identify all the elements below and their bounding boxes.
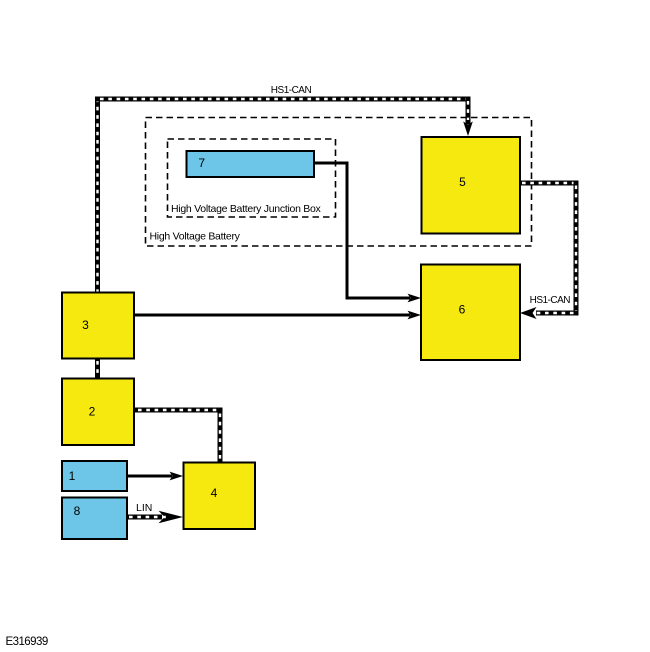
- svg-text:8: 8: [74, 504, 81, 518]
- svg-text:E316939: E316939: [6, 636, 48, 648]
- svg-text:5: 5: [459, 175, 466, 189]
- svg-text:2: 2: [89, 405, 96, 419]
- svg-text:LIN: LIN: [136, 502, 152, 514]
- svg-text:7: 7: [198, 156, 205, 170]
- svg-text:1: 1: [69, 469, 76, 483]
- svg-text:High Voltage Battery Junction: High Voltage Battery Junction Box: [171, 203, 322, 215]
- svg-text:4: 4: [211, 486, 218, 500]
- svg-text:High Voltage Battery: High Voltage Battery: [150, 231, 241, 243]
- svg-text:6: 6: [459, 303, 466, 317]
- svg-text:HS1-CAN: HS1-CAN: [271, 85, 312, 96]
- svg-text:3: 3: [82, 318, 89, 332]
- svg-text:HS1-CAN: HS1-CAN: [530, 295, 571, 306]
